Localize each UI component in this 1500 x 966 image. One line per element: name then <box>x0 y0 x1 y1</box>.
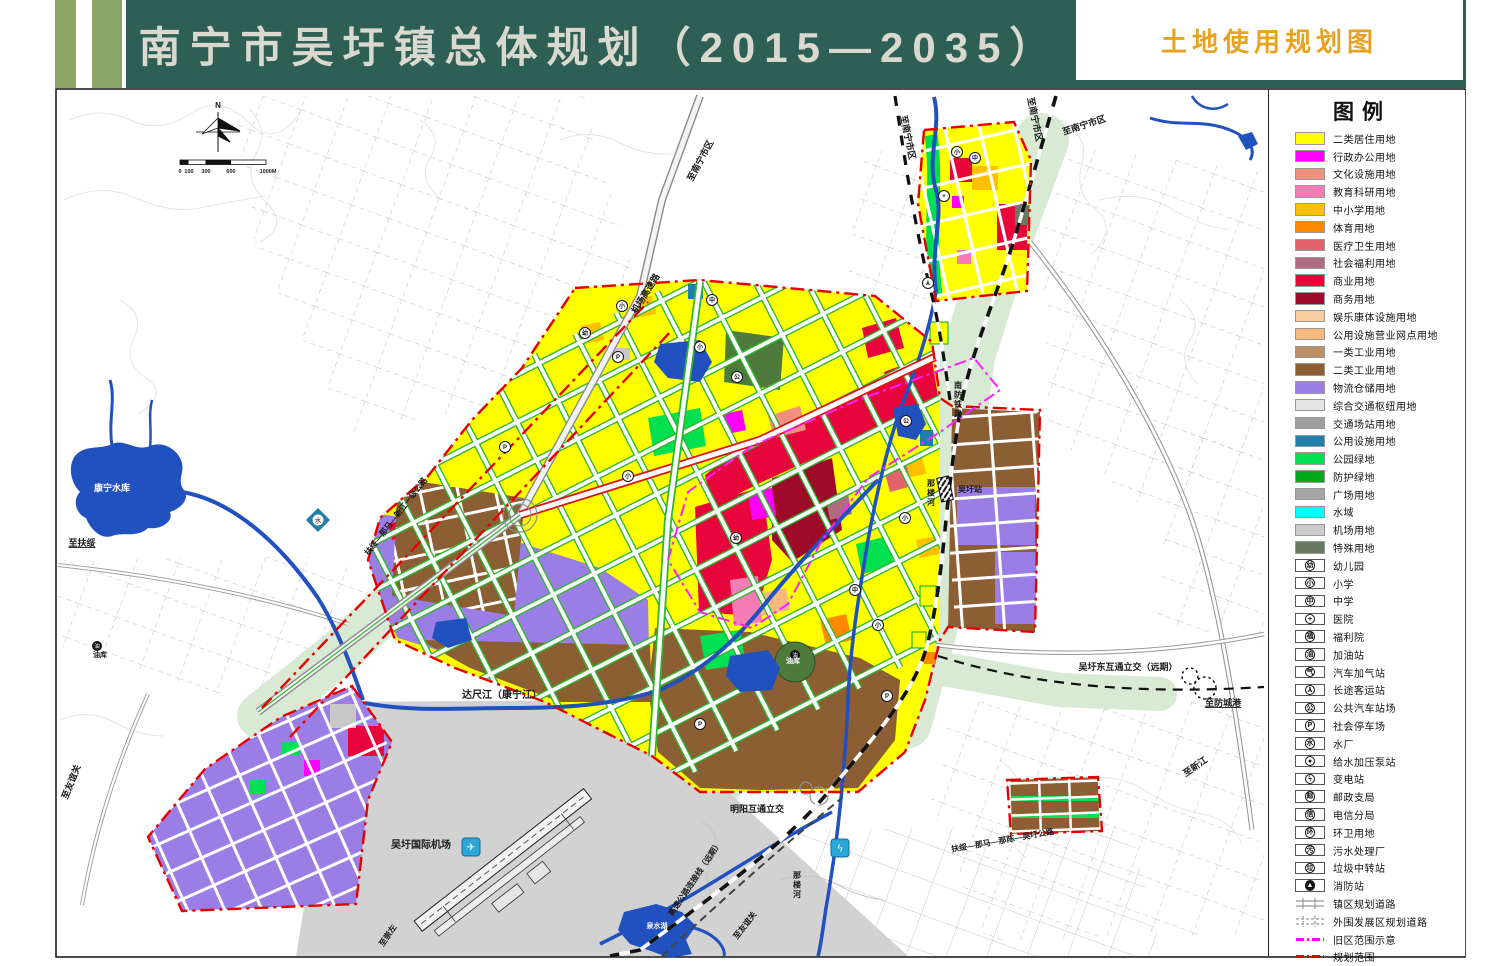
legend-color-swatch <box>1295 470 1325 483</box>
legend-item: 特殊用地 <box>1295 541 1459 554</box>
map-label: 泉水湖 <box>647 921 668 930</box>
page-title: 南宁市吴圩镇总体规划（2015—2035） <box>139 14 1061 75</box>
gas-station-icon: 油 <box>1305 649 1316 660</box>
legend-item: 外围发展区规划道路 <box>1295 915 1459 928</box>
legend-item: 公用设施用地 <box>1295 435 1459 448</box>
svg-text:小: 小 <box>624 472 631 480</box>
airport-icon: ✈ <box>462 838 480 856</box>
substation-icon: ϟ <box>1305 774 1316 785</box>
parking-icon: P <box>695 719 706 730</box>
legend-icon-swatch: 油 <box>1295 648 1325 661</box>
legend-item: 气汽车加气站 <box>1295 666 1459 679</box>
svg-text:P: P <box>885 694 889 700</box>
map-label: 300 <box>201 169 210 175</box>
legend-color-swatch <box>1295 239 1325 252</box>
legend-label: 广场用地 <box>1333 487 1375 502</box>
legend-item: 行政办公用地 <box>1295 150 1459 163</box>
legend-item: 福福利院 <box>1295 630 1459 643</box>
legend-color-swatch <box>1295 328 1325 341</box>
middle-school-icon: 中 <box>850 585 861 596</box>
legend-label: 特殊用地 <box>1333 540 1375 555</box>
legend-label: 商务用地 <box>1333 291 1375 306</box>
cng-station-icon: 气 <box>1305 667 1316 678</box>
legend-icon-swatch: 公 <box>1295 702 1325 715</box>
hospital-icon: + <box>939 191 950 202</box>
legend-label: 长途客运站 <box>1333 682 1386 697</box>
svg-text:小: 小 <box>618 302 625 310</box>
legend-icon-swatch: 垃 <box>1295 862 1325 875</box>
parking-icon: P <box>500 442 511 453</box>
legend-label: 水厂 <box>1333 736 1354 751</box>
middle-school-icon: 中 <box>707 295 718 306</box>
legend-label: 福利院 <box>1333 629 1365 644</box>
map-label: 南防铁路 <box>954 380 963 419</box>
legend-item: 规划范围 <box>1295 951 1459 964</box>
legend-item: 中小学用地 <box>1295 203 1459 216</box>
legend-color-swatch <box>1295 541 1325 554</box>
map-label: 0 <box>178 169 181 175</box>
legend-icon-swatch: 污 <box>1295 844 1325 857</box>
oil-depot-icon: 油 <box>92 641 102 651</box>
legend-label: 社会福利用地 <box>1333 255 1396 270</box>
legend-color-swatch <box>1295 150 1325 163</box>
map-label: 100 <box>184 169 193 175</box>
legend-label: 水域 <box>1333 504 1354 519</box>
scale-bar <box>180 160 266 165</box>
legend-color-swatch <box>1295 452 1325 465</box>
legend-label: 汽车加气站 <box>1333 665 1386 680</box>
legend-item: 综合交通枢纽用地 <box>1295 399 1459 412</box>
legend-label: 医疗卫生用地 <box>1333 238 1396 253</box>
legend-item: 公用设施营业网点用地 <box>1295 328 1459 341</box>
legend-label: 公用设施用地 <box>1333 433 1396 448</box>
map-label: N <box>215 101 221 110</box>
hospital-icon: + <box>1305 614 1316 625</box>
parking-icon: P <box>613 352 624 363</box>
old-district-line <box>1295 933 1325 946</box>
legend-icon-swatch: 水 <box>1295 737 1325 750</box>
svg-text:中: 中 <box>852 586 858 594</box>
primary-school-icon: 小 <box>900 513 911 524</box>
legend-label: 加油站 <box>1333 647 1365 662</box>
svg-text:✈: ✈ <box>467 843 475 854</box>
legend-icon-swatch: ● <box>1295 755 1325 768</box>
svg-text:中: 中 <box>709 296 715 304</box>
kindergarten-icon: 幼 <box>731 533 742 544</box>
legend-label: 体育用地 <box>1333 220 1375 235</box>
primary-school-icon: 小 <box>695 342 706 353</box>
legend-item: P社会停车场 <box>1295 719 1459 732</box>
legend-label: 一类工业用地 <box>1333 344 1396 359</box>
primary-school-icon: 小 <box>617 301 628 312</box>
header: 南宁市吴圩镇总体规划（2015—2035） 土地使用规划图 <box>0 0 1500 88</box>
legend-item: 一类工业用地 <box>1295 346 1459 359</box>
svg-text:P: P <box>503 445 507 451</box>
legend-label: 综合交通枢纽用地 <box>1333 398 1417 413</box>
svg-text:公: 公 <box>903 418 909 425</box>
legend-item: 文化设施用地 <box>1295 168 1459 181</box>
legend-item: 旧区范围示意 <box>1295 933 1459 946</box>
legend-icon-swatch: 幼 <box>1295 559 1325 572</box>
legend-item: 教育科研用地 <box>1295 185 1459 198</box>
legend-item: ⅄长途客运站 <box>1295 684 1459 697</box>
legend-item: 社会福利用地 <box>1295 257 1459 270</box>
map-label: 600 <box>226 169 235 175</box>
legend-item: 邮邮政支局 <box>1295 790 1459 803</box>
legend-label: 文化设施用地 <box>1333 166 1396 181</box>
legend-item: 广场用地 <box>1295 488 1459 501</box>
map-label: 油库 <box>786 656 800 665</box>
legend-label: 交通场站用地 <box>1333 416 1396 431</box>
bus-station-icon: 公 <box>1305 703 1316 714</box>
outer-road-swatch <box>1295 915 1325 928</box>
se-industrial-block <box>1005 774 1105 837</box>
legend-color-swatch <box>1295 346 1325 359</box>
legend-icon-swatch: 小 <box>1295 577 1325 590</box>
legend-item: 公公共汽车站场 <box>1295 702 1459 715</box>
svg-text:幼: 幼 <box>733 534 739 542</box>
svg-text:小: 小 <box>696 343 703 351</box>
primary-school-icon: 小 <box>623 471 634 482</box>
parking-icon: P <box>1305 720 1316 731</box>
svg-text:⅄: ⅄ <box>926 280 931 287</box>
legend-item: 小小学 <box>1295 577 1459 590</box>
legend-item: 二类工业用地 <box>1295 363 1459 376</box>
primary-school-icon: 小 <box>952 147 963 158</box>
parking-icon: P <box>882 691 893 702</box>
legend-color-swatch <box>1295 221 1325 234</box>
sewage-plant-icon: 污 <box>1305 845 1316 856</box>
legend-label: 商业用地 <box>1333 273 1375 288</box>
legend-icon-swatch: + <box>1295 613 1325 626</box>
svg-text:小: 小 <box>901 514 908 522</box>
map-label: 吴圩站 <box>958 484 982 494</box>
legend-panel: 图例 二类居住用地行政办公用地文化设施用地教育科研用地中小学用地体育用地医疗卫生… <box>1268 90 1465 956</box>
legend-icon-swatch: P <box>1295 719 1325 732</box>
map-label: 达尺江（康宁江） <box>462 688 542 701</box>
header-stripe <box>92 0 122 88</box>
legend-icon-swatch: 中 <box>1295 595 1325 608</box>
legend-item: 垃垃圾中转站 <box>1295 862 1459 875</box>
legend-color-swatch <box>1295 506 1325 519</box>
legend-item: 污污水处理厂 <box>1295 844 1459 857</box>
legend-label: 变电站 <box>1333 771 1365 786</box>
legend-label: 行政办公用地 <box>1333 149 1396 164</box>
legend-label: 医院 <box>1333 611 1354 626</box>
legend-item: 机场用地 <box>1295 524 1459 537</box>
legend-label: 邮政支局 <box>1333 789 1375 804</box>
map-label: 吴圩国际机场 <box>391 838 451 851</box>
svg-text:小: 小 <box>874 621 881 629</box>
svg-text:ϟ: ϟ <box>837 844 843 855</box>
coach-station-icon: ⅄ <box>1305 685 1316 696</box>
legend-label: 二类居住用地 <box>1333 131 1396 146</box>
sanitation-icon: 环 <box>1305 827 1316 838</box>
header-stripe <box>55 0 76 88</box>
middle-school-icon: 中 <box>1305 596 1316 607</box>
legend-label: 外围发展区规划道路 <box>1333 914 1428 929</box>
legend-label: 垃圾中转站 <box>1333 860 1386 875</box>
legend-item: 商业用地 <box>1295 274 1459 287</box>
legend-label: 旧区范围示意 <box>1333 932 1396 947</box>
legend-color-swatch <box>1295 310 1325 323</box>
svg-text:P: P <box>616 355 620 361</box>
legend-item: 物流仓储用地 <box>1295 381 1459 394</box>
sheet-label-box: 土地使用规划图 <box>1076 0 1465 80</box>
svg-text:油: 油 <box>94 642 100 650</box>
primary-school-icon: 小 <box>873 620 884 631</box>
map-label: 至防城港 <box>1205 697 1242 708</box>
legend-label: 小学 <box>1333 576 1354 591</box>
legend-item: 环环卫用地 <box>1295 826 1459 839</box>
legend-color-swatch <box>1295 292 1325 305</box>
legend-label: 规划范围 <box>1333 949 1375 964</box>
svg-text:幼: 幼 <box>582 329 588 337</box>
map-label: 明阳互通立交 <box>730 803 784 814</box>
water-plant-icon: 水 <box>1305 738 1316 749</box>
legend-icon-swatch: 信 <box>1295 808 1325 821</box>
legend-item: 交通场站用地 <box>1295 417 1459 430</box>
legend-label: 环卫用地 <box>1333 825 1375 840</box>
legend-item: 水水厂 <box>1295 737 1459 750</box>
planning-boundary-line <box>1295 951 1325 964</box>
legend-rows: 二类居住用地行政办公用地文化设施用地教育科研用地中小学用地体育用地医疗卫生用地社… <box>1295 132 1459 963</box>
pump-station-icon: ● <box>1305 756 1316 767</box>
kindergarten-icon: 幼 <box>580 328 591 339</box>
legend-color-swatch <box>1295 399 1325 412</box>
legend-color-swatch <box>1295 363 1325 376</box>
legend-item: 公园绿地 <box>1295 452 1459 465</box>
legend-icon-swatch: 邮 <box>1295 790 1325 803</box>
substation-icon: ϟ <box>831 839 849 857</box>
svg-text:公: 公 <box>734 374 740 381</box>
legend-color-swatch <box>1295 132 1325 145</box>
legend-label: 污水处理厂 <box>1333 843 1386 858</box>
svg-text:水: 水 <box>315 515 322 524</box>
legend-label: 消防站 <box>1333 878 1365 893</box>
post-office-icon: 邮 <box>1305 791 1316 802</box>
legend-item: ϟ变电站 <box>1295 773 1459 786</box>
legend-label: 机场用地 <box>1333 522 1375 537</box>
legend-icon-swatch: ϟ <box>1295 773 1325 786</box>
legend-icon-swatch: 环 <box>1295 826 1325 839</box>
legend-color-swatch <box>1295 274 1325 287</box>
legend-label: 社会停车场 <box>1333 718 1386 733</box>
map-label: 吴圩东互通立交（远期） <box>1078 661 1177 672</box>
legend-label: 公共汽车站场 <box>1333 700 1396 715</box>
legend-color-swatch <box>1295 488 1325 501</box>
map-label: 那楼河 <box>927 479 935 507</box>
map-label: 油库 <box>93 650 107 659</box>
title-box: 南宁市吴圩镇总体规划（2015—2035） <box>126 0 1073 88</box>
svg-text:中: 中 <box>972 154 978 162</box>
legend-title: 图例 <box>1295 96 1429 126</box>
svg-text:+: + <box>942 194 946 200</box>
garbage-transfer-icon: 垃 <box>1305 863 1316 874</box>
legend-icon-swatch: 福 <box>1295 630 1325 643</box>
svg-text:小: 小 <box>953 148 960 156</box>
primary-school-icon: 小 <box>1305 578 1316 589</box>
legend-item: 镇区规划道路 <box>1295 897 1459 910</box>
legend-color-swatch <box>1295 381 1325 394</box>
legend-item: +医院 <box>1295 613 1459 626</box>
legend-item: 水域 <box>1295 506 1459 519</box>
map-label: 康宁水库 <box>94 482 130 493</box>
bus-station-icon: 公 <box>901 416 912 427</box>
legend-label: 娱乐康体设施用地 <box>1333 309 1417 324</box>
svg-text:P: P <box>698 722 702 728</box>
legend-label: 中小学用地 <box>1333 202 1386 217</box>
legend-color-swatch <box>1295 185 1325 198</box>
legend-label: 教育科研用地 <box>1333 184 1396 199</box>
fire-station-icon: ▲ <box>1305 880 1316 891</box>
legend-label: 中学 <box>1333 593 1354 608</box>
legend-label: 镇区规划道路 <box>1333 896 1396 911</box>
legend-color-swatch <box>1295 203 1325 216</box>
legend-label: 公用设施营业网点用地 <box>1333 327 1438 342</box>
legend-item: 防护绿地 <box>1295 470 1459 483</box>
legend-label: 幼儿园 <box>1333 558 1365 573</box>
map-label: 1000M <box>260 169 277 175</box>
legend-icon-swatch: ⅄ <box>1295 684 1325 697</box>
legend-item: 信电信分局 <box>1295 808 1459 821</box>
map-label: 那楼河 <box>793 871 801 899</box>
legend-item: ●给水加压泵站 <box>1295 755 1459 768</box>
legend-color-swatch <box>1295 417 1325 430</box>
legend-color-swatch <box>1295 257 1325 270</box>
legend-item: 幼幼儿园 <box>1295 559 1459 572</box>
legend-item: ▲消防站 <box>1295 879 1459 892</box>
legend-icon-swatch: 气 <box>1295 666 1325 679</box>
legend-item: 医疗卫生用地 <box>1295 239 1459 252</box>
legend-label: 二类工业用地 <box>1333 362 1396 377</box>
bus-station-icon: 公 <box>732 372 743 383</box>
legend-item: 商务用地 <box>1295 292 1459 305</box>
legend-item: 体育用地 <box>1295 221 1459 234</box>
welfare-house-icon: 福 <box>1305 631 1316 642</box>
kindergarten-icon: 幼 <box>1305 560 1316 571</box>
legend-label: 公园绿地 <box>1333 451 1375 466</box>
legend-color-swatch <box>1295 435 1325 448</box>
legend-item: 油加油站 <box>1295 648 1459 661</box>
sheet-label: 土地使用规划图 <box>1161 22 1378 59</box>
coach-station-icon: ⅄ <box>923 278 934 289</box>
legend-icon-swatch: ▲ <box>1295 879 1325 892</box>
legend-item: 二类居住用地 <box>1295 132 1459 145</box>
legend-label: 物流仓储用地 <box>1333 380 1396 395</box>
telecom-office-icon: 信 <box>1305 809 1316 820</box>
legend-color-swatch <box>1295 524 1325 537</box>
legend-color-swatch <box>1295 168 1325 181</box>
middle-school-icon: 中 <box>970 153 981 164</box>
legend-item: 中中学 <box>1295 595 1459 608</box>
map-label: 至扶绥 <box>68 537 95 548</box>
legend-label: 给水加压泵站 <box>1333 754 1396 769</box>
legend-label: 电信分局 <box>1333 807 1375 822</box>
town-road-swatch <box>1295 897 1325 910</box>
legend-item: 娱乐康体设施用地 <box>1295 310 1459 323</box>
legend-label: 防护绿地 <box>1333 469 1375 484</box>
